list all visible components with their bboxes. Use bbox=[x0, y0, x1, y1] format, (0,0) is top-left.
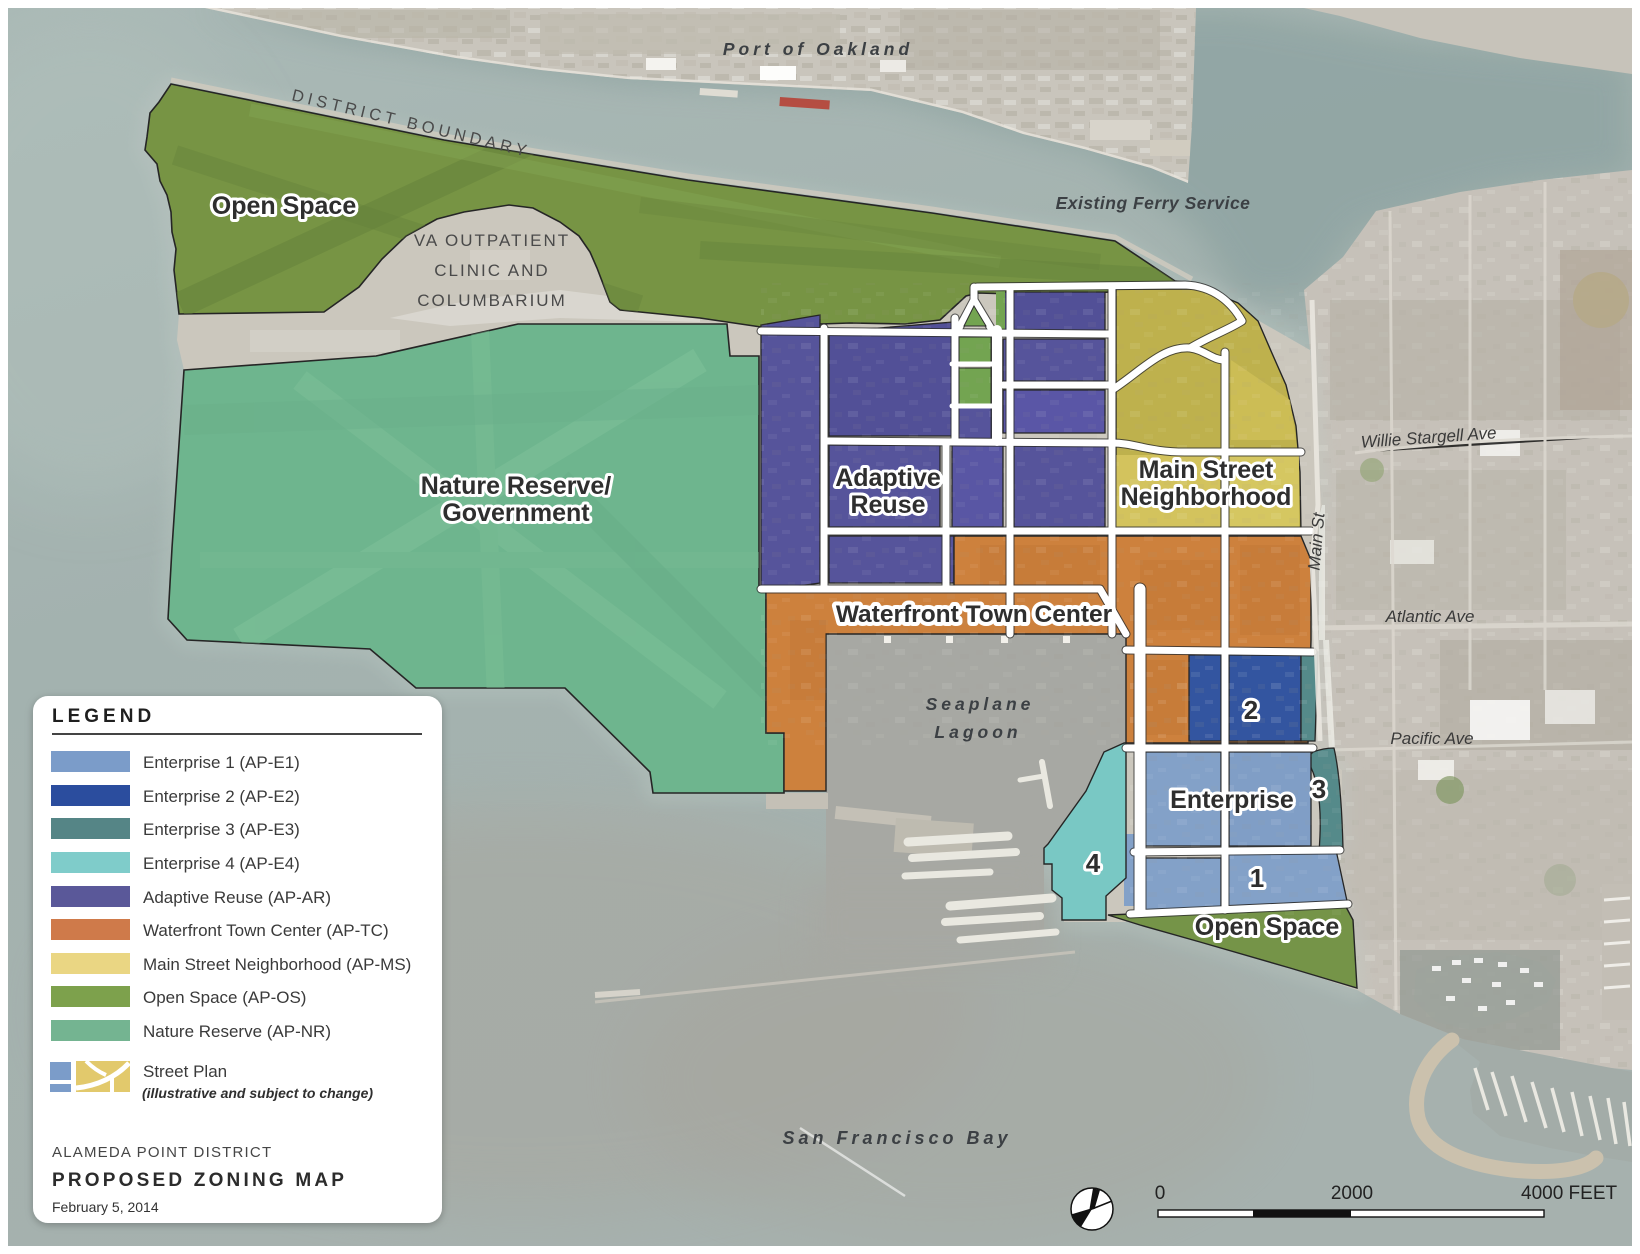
svg-text:Seaplane: Seaplane bbox=[926, 694, 1035, 714]
svg-text:4: 4 bbox=[1086, 848, 1101, 878]
svg-text:Lagoon: Lagoon bbox=[934, 722, 1021, 742]
svg-text:Main Street: Main Street bbox=[1139, 456, 1274, 484]
svg-text:February 5, 2014: February 5, 2014 bbox=[52, 1199, 159, 1215]
svg-text:Reuse: Reuse bbox=[850, 491, 925, 519]
svg-text:0: 0 bbox=[1155, 1183, 1166, 1204]
svg-text:ALAMEDA POINT DISTRICT: ALAMEDA POINT DISTRICT bbox=[52, 1144, 272, 1161]
svg-text:Open Space: Open Space bbox=[1195, 913, 1340, 941]
svg-text:(illustrative and subject to c: (illustrative and subject to change) bbox=[142, 1085, 373, 1101]
svg-text:Existing Ferry Service: Existing Ferry Service bbox=[1056, 193, 1251, 213]
svg-text:Neighborhood: Neighborhood bbox=[1121, 483, 1292, 511]
svg-text:VA OUTPATIENT: VA OUTPATIENT bbox=[414, 231, 570, 250]
svg-text:4000 FEET: 4000 FEET bbox=[1521, 1183, 1617, 1204]
svg-text:Enterprise: Enterprise bbox=[1170, 786, 1294, 814]
svg-text:Waterfront Town Center (AP-TC): Waterfront Town Center (AP-TC) bbox=[143, 921, 389, 940]
svg-text:PROPOSED ZONING MAP: PROPOSED ZONING MAP bbox=[52, 1170, 347, 1191]
svg-text:Waterfront Town Center: Waterfront Town Center bbox=[836, 601, 1113, 628]
svg-text:Pacific Ave: Pacific Ave bbox=[1390, 729, 1473, 748]
svg-text:Enterprise 1 (AP-E1): Enterprise 1 (AP-E1) bbox=[143, 753, 300, 772]
svg-text:Enterprise 4 (AP-E4): Enterprise 4 (AP-E4) bbox=[143, 854, 300, 873]
svg-text:2000: 2000 bbox=[1331, 1183, 1373, 1204]
svg-text:Adaptive: Adaptive bbox=[835, 464, 941, 492]
svg-text:Nature Reserve (AP-NR): Nature Reserve (AP-NR) bbox=[143, 1022, 331, 1041]
svg-text:San Francisco Bay: San Francisco Bay bbox=[782, 1128, 1011, 1148]
svg-text:Atlantic Ave: Atlantic Ave bbox=[1385, 607, 1475, 626]
svg-text:2: 2 bbox=[1244, 695, 1258, 725]
svg-text:Open Space (AP-OS): Open Space (AP-OS) bbox=[143, 988, 306, 1007]
svg-text:Nature Reserve/: Nature Reserve/ bbox=[421, 472, 611, 500]
svg-text:Street Plan: Street Plan bbox=[143, 1062, 227, 1081]
svg-text:Open Space: Open Space bbox=[212, 192, 357, 220]
svg-text:Adaptive Reuse (AP-AR): Adaptive Reuse (AP-AR) bbox=[143, 888, 331, 907]
svg-text:Port of Oakland: Port of Oakland bbox=[723, 39, 913, 59]
svg-text:1: 1 bbox=[1250, 863, 1264, 893]
svg-text:Government: Government bbox=[442, 499, 590, 527]
svg-text:CLINIC AND: CLINIC AND bbox=[434, 261, 549, 280]
svg-text:Enterprise 3 (AP-E3): Enterprise 3 (AP-E3) bbox=[143, 820, 300, 839]
svg-text:LEGEND: LEGEND bbox=[52, 706, 155, 727]
svg-text:Enterprise 2 (AP-E2): Enterprise 2 (AP-E2) bbox=[143, 787, 300, 806]
svg-text:3: 3 bbox=[1312, 774, 1326, 804]
svg-text:Main Street Neighborhood (AP-M: Main Street Neighborhood (AP-MS) bbox=[143, 955, 411, 974]
svg-text:COLUMBARIUM: COLUMBARIUM bbox=[417, 291, 567, 310]
